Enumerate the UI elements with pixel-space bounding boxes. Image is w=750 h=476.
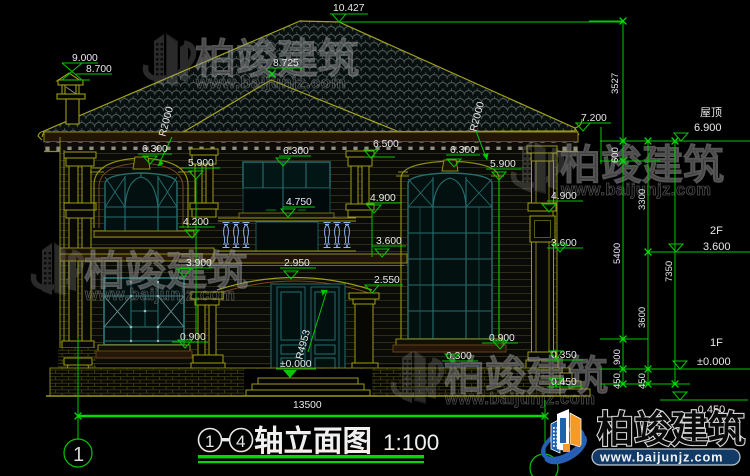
svg-text:0.900: 0.900: [489, 333, 515, 344]
svg-text:2.550: 2.550: [374, 275, 400, 286]
svg-text:13500: 13500: [293, 400, 322, 411]
svg-text:6.300: 6.300: [283, 146, 309, 157]
svg-text:1:100: 1:100: [383, 430, 439, 455]
svg-text:900: 900: [612, 349, 623, 365]
svg-text:屋顶: 屋顶: [700, 106, 722, 119]
svg-text:4.750: 4.750: [286, 197, 312, 208]
svg-text:2.950: 2.950: [284, 258, 310, 269]
svg-text:6.500: 6.500: [373, 139, 399, 150]
svg-text:www.baijunjz.com: www.baijunjz.com: [84, 286, 235, 304]
svg-text:600: 600: [610, 147, 621, 163]
svg-text:1: 1: [73, 444, 84, 466]
svg-text:6.300: 6.300: [450, 145, 476, 156]
svg-text:www.baijunjz.com: www.baijunjz.com: [195, 74, 346, 92]
svg-text:6.900: 6.900: [694, 122, 722, 134]
svg-text:3527: 3527: [610, 73, 621, 94]
svg-text:±0.000: ±0.000: [280, 359, 312, 370]
svg-text:www.baijunjz.com: www.baijunjz.com: [560, 181, 711, 199]
svg-text:3.900: 3.900: [186, 258, 212, 269]
svg-text:8.725: 8.725: [273, 58, 299, 69]
svg-text:柏竣建筑: 柏竣建筑: [597, 408, 745, 450]
svg-text:www.baijunjz.com: www.baijunjz.com: [444, 390, 595, 408]
svg-text:7.200: 7.200: [581, 113, 607, 124]
svg-text:4.900: 4.900: [370, 193, 396, 204]
svg-text:1: 1: [205, 432, 214, 451]
svg-text:0.900: 0.900: [180, 332, 206, 343]
svg-text:9.000: 9.000: [72, 53, 98, 64]
svg-text:3300: 3300: [637, 189, 648, 210]
svg-text:8.700: 8.700: [86, 64, 112, 75]
svg-text:5.900: 5.900: [188, 158, 214, 169]
svg-text:2F: 2F: [710, 225, 723, 237]
svg-text:6.300: 6.300: [142, 144, 168, 155]
svg-text:5.900: 5.900: [490, 159, 516, 170]
svg-text:7350: 7350: [664, 261, 675, 282]
svg-text:450: 450: [612, 373, 623, 389]
svg-text:4.200: 4.200: [183, 217, 209, 228]
svg-text:3.600: 3.600: [703, 241, 731, 253]
svg-text:4: 4: [236, 432, 245, 451]
svg-text:1F: 1F: [710, 337, 723, 349]
svg-text:3.600: 3.600: [376, 236, 402, 247]
svg-text:4.900: 4.900: [551, 191, 577, 202]
svg-text:450: 450: [637, 373, 648, 389]
svg-text:轴立面图: 轴立面图: [254, 424, 372, 458]
svg-text:3600: 3600: [637, 307, 648, 328]
svg-text:0.450: 0.450: [551, 377, 577, 388]
svg-text:www.baijunjz.com: www.baijunjz.com: [599, 450, 723, 465]
svg-text:5400: 5400: [612, 243, 623, 264]
svg-text:±0.000: ±0.000: [697, 356, 731, 368]
svg-text:10.427: 10.427: [333, 3, 365, 14]
svg-text:0.350: 0.350: [551, 350, 577, 361]
